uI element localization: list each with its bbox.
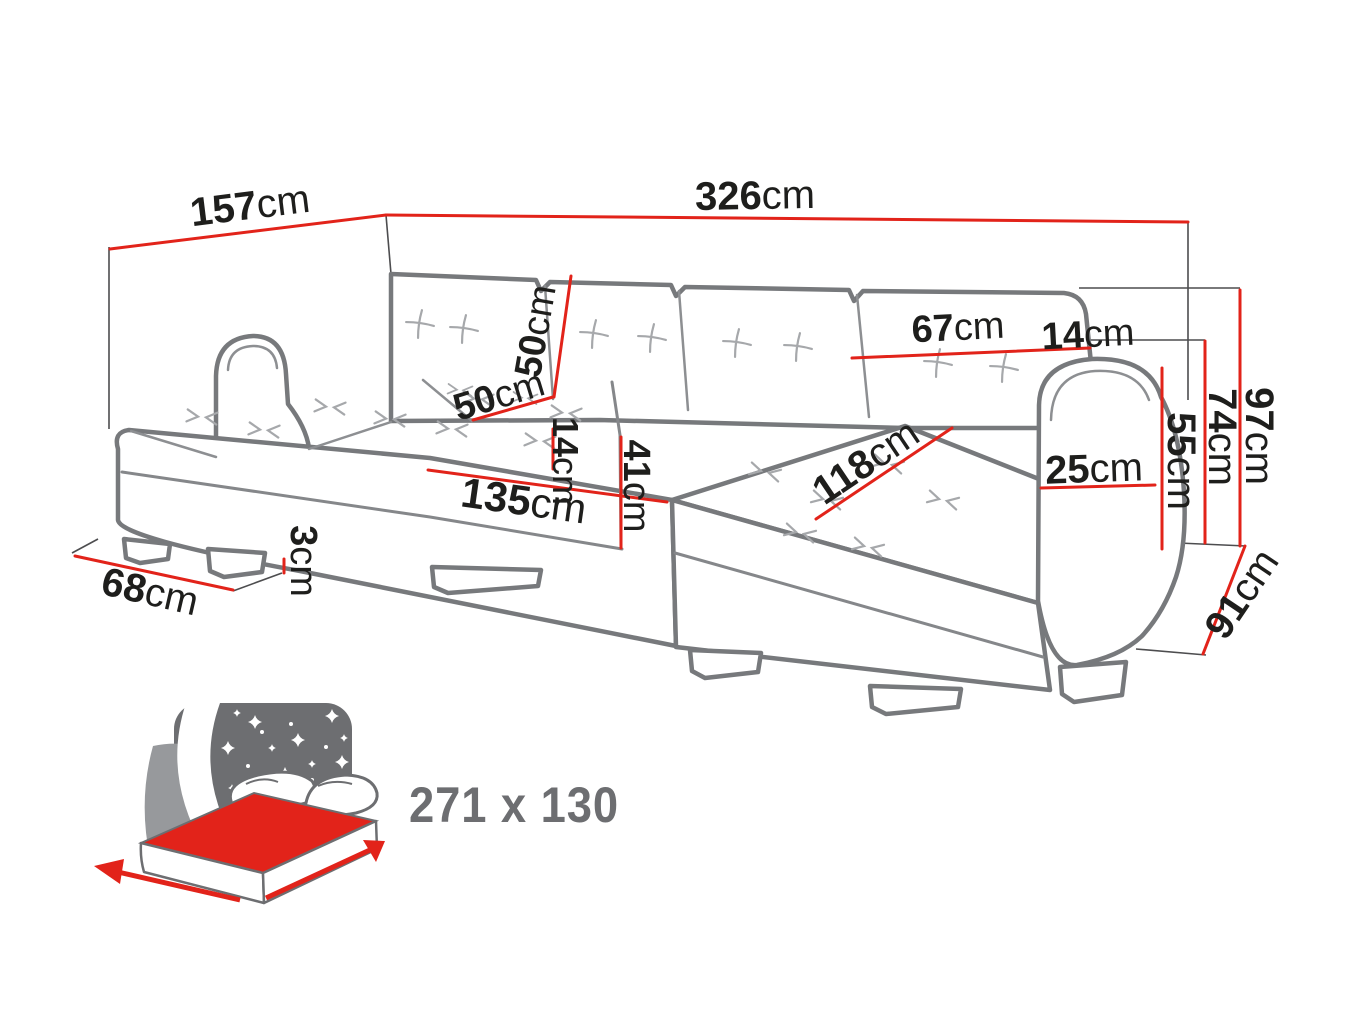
sofa-foot — [124, 539, 170, 563]
star-dot — [324, 745, 328, 749]
dim-label-14cm-top: 14cm — [1040, 312, 1135, 359]
seat-body — [117, 430, 676, 646]
sofa-foot — [1060, 662, 1126, 702]
dim-label-41cm: 41cm — [615, 440, 657, 533]
dim-label-97cm: 97cm — [1237, 387, 1281, 485]
arrow-length-head-icon — [94, 859, 124, 884]
sofa-dimension-diagram: 157cm 326cm 67cm 14cm 50cm 50cm 14cm 41c… — [0, 0, 1350, 1012]
bed-size-label: 271 x 130 — [409, 777, 619, 833]
star-dot — [289, 722, 293, 726]
seat-back-edge — [309, 422, 391, 449]
ext-line-91-bottom — [1136, 649, 1206, 655]
dim-label-67cm: 67cm — [910, 305, 1005, 352]
ext-line-68-left — [72, 539, 98, 553]
corner-wall-line — [386, 215, 391, 274]
sleeping-function-icon: 271 x 130 — [94, 703, 619, 903]
dim-label-91cm: 91cm — [1196, 541, 1287, 647]
star-dot — [246, 764, 250, 768]
dim-label-55cm: 55cm — [1159, 412, 1203, 510]
star-dot — [260, 730, 264, 734]
sofa-foot — [870, 686, 961, 714]
diagram-canvas: 157cm 326cm 67cm 14cm 50cm 50cm 14cm 41c… — [0, 0, 1350, 1012]
dim-label-68cm: 68cm — [97, 560, 202, 625]
sofa-foot — [690, 650, 761, 678]
sofa-foot — [432, 567, 541, 593]
dim-label-25cm: 25cm — [1044, 445, 1143, 492]
dim-label-326cm: 326cm — [695, 173, 816, 219]
sofa-foot — [208, 549, 265, 577]
dim-label-3cm: 3cm — [282, 525, 324, 597]
